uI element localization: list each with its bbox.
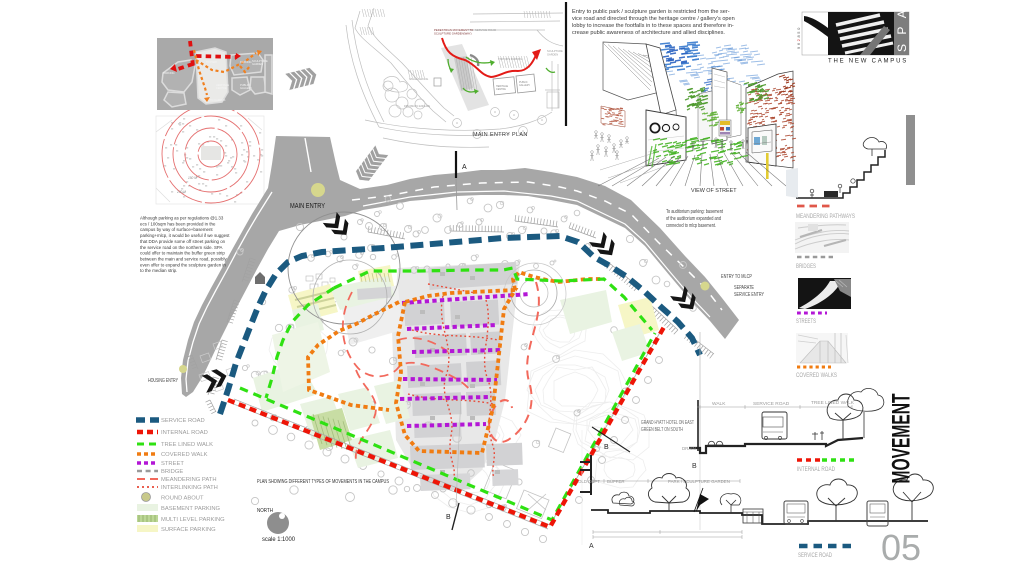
svg-text:Although parking as per regula: Although parking as per regulations @1.3… [140,216,224,221]
svg-text:BUFFER: BUFFER [607,479,625,484]
svg-text:05: 05 [881,527,921,567]
svg-text:MAIN ENTRY: MAIN ENTRY [290,203,325,210]
svg-text:S P A: S P A [895,7,909,52]
svg-text:PARK / SCULPTURE GARDEN: PARK / SCULPTURE GARDEN [668,479,730,484]
svg-text:CENTRE: CENTRE [496,88,506,91]
svg-text:BRIDGES: BRIDGES [796,263,816,270]
svg-text:ENTRY TO MLCP: ENTRY TO MLCP [721,274,752,280]
svg-text:campus by way of surface+basem: campus by way of surface+basement [140,227,213,232]
svg-text:SPACE PARKING: SPACE PARKING [409,78,428,81]
svg-text:PARKING: PARKING [240,60,251,64]
svg-text:even offer to expand the sculp: even offer to expand the sculpture garde… [140,262,226,267]
svg-text:TREE LINED WALK: TREE LINED WALK [161,442,213,448]
svg-text:SERVICE ENTRY: SERVICE ENTRY [734,292,764,298]
svg-text:COVERED WALK: COVERED WALK [161,452,208,458]
svg-text:DRAIN: DRAIN [682,446,696,451]
svg-text:INTERLINKING PATH: INTERLINKING PATH [161,485,218,491]
svg-text:MOVEMENT: MOVEMENT [888,394,916,484]
svg-text:THE NEW CAMPUS: THE NEW CAMPUS [828,58,908,65]
svg-text:B: B [604,444,609,451]
svg-text:MEANDERING PATH: MEANDERING PATH [161,477,217,483]
svg-text:lobby to increase the footfall: lobby to increase the footfalls in to th… [572,23,734,29]
svg-text:vice road and directed through: vice road and directed through the herit… [572,16,735,22]
svg-text:962850: 962850 [796,26,801,49]
svg-text:Entry to public park / sculptu: Entry to public park / sculpture garden … [572,9,730,15]
svg-text:SERVICE ROAD: SERVICE ROAD [161,418,205,424]
svg-text:230 M: 230 M [176,190,186,194]
svg-text:could offer to maintain the bu: could offer to maintain the buffer green… [140,251,225,256]
svg-text:A: A [462,164,467,171]
svg-text:TREE LINED WALK: TREE LINED WALK [811,400,855,406]
svg-text:scale 1:1000: scale 1:1000 [262,536,296,543]
svg-text:SURFACE PARKING: SURFACE PARKING [161,527,216,533]
svg-text:VIEW OF STREET: VIEW OF STREET [691,188,737,194]
svg-text:GREEN BELT ON SOUTH: GREEN BELT ON SOUTH [641,427,683,433]
svg-text:To auditorium parking: basemen: To auditorium parking: basement [666,209,723,215]
svg-text:COVERED WALKS: COVERED WALKS [796,372,837,379]
svg-text:PARKING: PARKING [163,71,174,75]
svg-text:TO CAMPUS: TO CAMPUS [210,98,226,102]
svg-text:SERVICE ROAD: SERVICE ROAD [798,552,832,559]
svg-text:to the median strip.: to the median strip. [140,268,177,273]
svg-text:of the auditorium expanded and: of the auditorium expanded and [666,216,721,222]
svg-text:SERVICE ROAD: SERVICE ROAD [753,401,790,407]
svg-text:MEANDERING PATHWAYS: MEANDERING PATHWAYS [796,213,855,220]
svg-text:between the main and service r: between the main and service road, possi… [140,256,227,261]
svg-text:ecs / 100sqm has been provided: ecs / 100sqm has been provided in the [140,221,216,226]
svg-text:BRIDGE: BRIDGE [161,469,183,475]
svg-text:TO PARK: TO PARK [206,60,217,64]
svg-text:B: B [446,514,451,521]
svg-text:connected to mlcp basement.: connected to mlcp basement. [666,223,716,229]
svg-text:SCULPTURE GARDEN(WAY): SCULPTURE GARDEN(WAY) [434,32,472,36]
svg-text:that DDA provide some off stre: that DDA provide some off street parking… [140,239,226,244]
svg-text:SERVICE ROAD: SERVICE ROAD [475,28,496,32]
svg-text:INTERNAL ROAD: INTERNAL ROAD [161,430,208,436]
svg-text:SCULPTURE: SCULPTURE [547,49,563,53]
svg-text:GALLERY: GALLERY [519,84,530,87]
svg-text:BASEMENT PARKING: BASEMENT PARKING [161,506,221,512]
svg-text:INTERNAL ROAD: INTERNAL ROAD [797,466,835,473]
svg-text:MULTI LEVEL PARKING: MULTI LEVEL PARKING [161,517,225,523]
svg-text:ROUND ABOUT: ROUND ABOUT [161,496,204,502]
svg-text:WALK: WALK [712,401,726,407]
svg-text:SEPARATE: SEPARATE [734,285,754,291]
svg-text:STREET: STREET [161,461,184,467]
svg-text:GARDEN: GARDEN [252,62,263,66]
svg-text:MAIN ENTRY PLAN: MAIN ENTRY PLAN [473,132,528,138]
svg-text:GARDEN: GARDEN [547,52,558,56]
svg-text:NORTH: NORTH [257,508,273,514]
svg-text:GALLERY: GALLERY [240,86,252,90]
svg-text:DIPLOMATIC ENCLAVE: DIPLOMATIC ENCLAVE [404,105,430,108]
svg-text:OLD DEPT: OLD DEPT [578,479,600,484]
svg-text:CENTRE: CENTRE [216,86,227,90]
svg-text:crease public awareness of arc: crease public awareness of architecture … [572,30,725,36]
svg-text:parking+mlcp, it would be usef: parking+mlcp, it would be useful if we s… [140,233,230,238]
svg-text:the service road on the northe: the service road on the northern side. S… [140,245,222,250]
svg-text:A: A [589,543,594,550]
svg-text:PLAN SHOWING DIFFERENT TYPES O: PLAN SHOWING DIFFERENT TYPES OF MOVEMENT… [257,479,389,485]
svg-text:STREETS: STREETS [796,318,816,325]
svg-text:150 M: 150 M [188,176,197,180]
svg-text:B: B [692,463,697,470]
svg-text:HOUSING ENTRY: HOUSING ENTRY [148,378,178,384]
svg-text:VISITORS PARKING: VISITORS PARKING [498,57,522,61]
svg-text:GRAND HYATT HOTEL ON EAST: GRAND HYATT HOTEL ON EAST [641,420,695,426]
